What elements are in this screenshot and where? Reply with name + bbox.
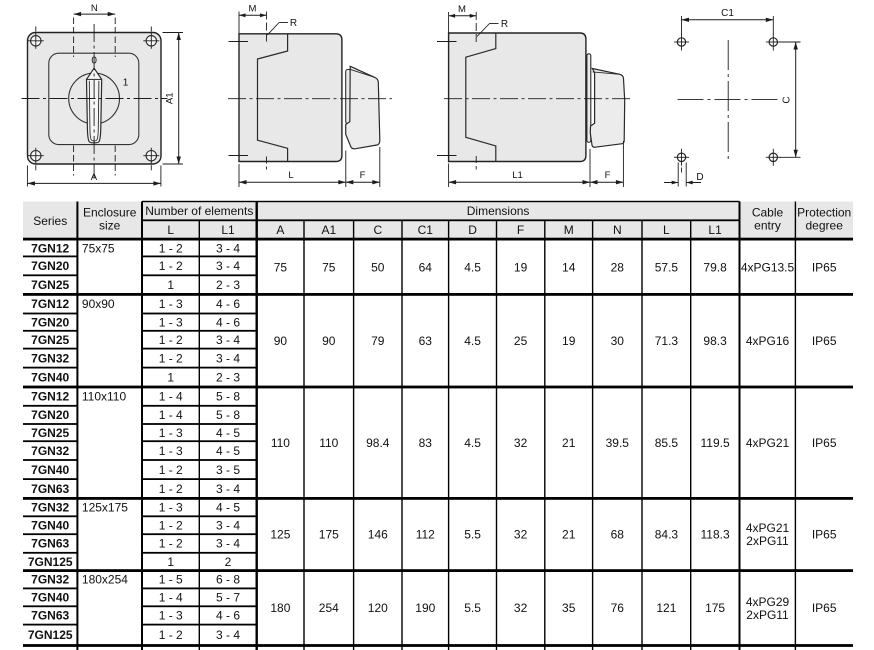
svg-text:90: 90: [274, 334, 288, 348]
svg-text:1 - 2: 1 - 2: [159, 537, 183, 551]
svg-text:83: 83: [419, 436, 433, 450]
svg-text:4xPG16: 4xPG16: [746, 334, 790, 348]
svg-text:98.3: 98.3: [703, 334, 727, 348]
svg-text:6 - 8: 6 - 8: [216, 573, 240, 587]
svg-text:7GN25: 7GN25: [31, 278, 69, 292]
svg-text:7GN63: 7GN63: [31, 482, 69, 496]
svg-text:57.5: 57.5: [655, 261, 679, 275]
svg-text:7GN32: 7GN32: [31, 573, 69, 587]
svg-text:175: 175: [319, 528, 339, 542]
svg-text:Number of elements: Number of elements: [145, 204, 253, 218]
svg-text:75: 75: [274, 261, 288, 275]
svg-text:4.5: 4.5: [464, 261, 481, 275]
svg-text:125: 125: [270, 528, 290, 542]
svg-text:71.3: 71.3: [655, 334, 679, 348]
svg-text:1 - 2: 1 - 2: [159, 242, 183, 256]
svg-text:3 - 4: 3 - 4: [216, 333, 240, 347]
svg-text:21: 21: [562, 436, 576, 450]
svg-text:M: M: [249, 4, 257, 15]
svg-text:90x90: 90x90: [82, 297, 115, 311]
svg-text:3 - 4: 3 - 4: [216, 537, 240, 551]
svg-text:5 - 7: 5 - 7: [216, 591, 240, 605]
svg-text:25: 25: [514, 334, 528, 348]
svg-text:110x110: 110x110: [82, 390, 127, 404]
svg-text:R: R: [290, 18, 297, 29]
svg-text:2: 2: [225, 555, 232, 569]
svg-text:3 - 4: 3 - 4: [216, 351, 240, 365]
svg-text:1 - 2: 1 - 2: [159, 333, 183, 347]
svg-text:4xPG21: 4xPG21: [746, 521, 790, 535]
svg-text:75x75: 75x75: [82, 242, 115, 256]
svg-text:1 - 3: 1 - 3: [159, 501, 183, 515]
svg-text:39.5: 39.5: [606, 436, 630, 450]
svg-text:110: 110: [319, 436, 338, 450]
svg-text:4 - 6: 4 - 6: [216, 609, 240, 623]
svg-text:50: 50: [371, 261, 385, 275]
svg-text:4xPG13.5: 4xPG13.5: [741, 261, 795, 275]
svg-text:R: R: [501, 19, 508, 30]
svg-text:IP65: IP65: [812, 334, 837, 348]
svg-text:D: D: [468, 223, 477, 237]
svg-text:D: D: [696, 172, 703, 183]
svg-text:32: 32: [514, 436, 528, 450]
svg-text:IP65: IP65: [812, 601, 837, 615]
svg-text:4 - 5: 4 - 5: [216, 501, 240, 515]
svg-text:1: 1: [123, 78, 129, 89]
svg-text:121: 121: [656, 601, 676, 615]
svg-text:4xPG29: 4xPG29: [746, 595, 790, 609]
svg-text:254: 254: [319, 601, 339, 615]
svg-text:3 - 4: 3 - 4: [216, 519, 240, 533]
svg-text:118.3: 118.3: [701, 528, 730, 542]
svg-text:1 - 2: 1 - 2: [159, 482, 183, 496]
svg-text:7GN63: 7GN63: [31, 609, 69, 623]
svg-text:180: 180: [270, 601, 290, 615]
svg-text:C1: C1: [721, 8, 734, 19]
svg-text:2 - 3: 2 - 3: [216, 278, 240, 292]
svg-text:IP65: IP65: [812, 436, 837, 450]
svg-text:1 - 5: 1 - 5: [159, 573, 183, 587]
svg-text:19: 19: [514, 261, 528, 275]
svg-text:Protection: Protection: [797, 206, 851, 220]
svg-text:14: 14: [562, 261, 576, 275]
svg-text:4.5: 4.5: [464, 436, 481, 450]
svg-text:85.5: 85.5: [655, 436, 679, 450]
svg-text:120: 120: [368, 601, 388, 615]
svg-text:5.5: 5.5: [464, 528, 481, 542]
svg-text:2xPG11: 2xPG11: [746, 608, 789, 622]
svg-text:7GN20: 7GN20: [31, 259, 69, 273]
svg-text:125x175: 125x175: [82, 501, 128, 515]
svg-text:7GN25: 7GN25: [31, 333, 69, 347]
svg-text:IP65: IP65: [812, 528, 837, 542]
svg-text:90: 90: [322, 334, 336, 348]
svg-text:3 - 4: 3 - 4: [216, 259, 240, 273]
svg-text:1 - 4: 1 - 4: [159, 390, 183, 404]
svg-text:C: C: [782, 96, 793, 103]
svg-text:3 - 4: 3 - 4: [216, 628, 240, 642]
svg-text:7GN32: 7GN32: [31, 444, 69, 458]
svg-text:19: 19: [562, 334, 576, 348]
svg-text:7GN40: 7GN40: [31, 519, 69, 533]
svg-text:3 - 5: 3 - 5: [216, 463, 240, 477]
svg-text:5 - 8: 5 - 8: [216, 408, 240, 422]
svg-text:1 - 3: 1 - 3: [159, 609, 183, 623]
svg-text:1 - 2: 1 - 2: [159, 628, 183, 642]
svg-text:A: A: [276, 223, 284, 237]
svg-text:A1: A1: [164, 92, 175, 104]
svg-text:4.5: 4.5: [464, 334, 481, 348]
svg-text:M: M: [564, 223, 574, 237]
svg-text:7GN12: 7GN12: [31, 390, 69, 404]
svg-text:4 - 5: 4 - 5: [216, 444, 240, 458]
svg-text:84.3: 84.3: [655, 528, 679, 542]
svg-text:4 - 6: 4 - 6: [216, 297, 240, 311]
svg-text:7GN40: 7GN40: [31, 591, 69, 605]
svg-text:7GN40: 7GN40: [31, 371, 69, 385]
svg-text:4 - 6: 4 - 6: [216, 315, 240, 329]
svg-text:119.5: 119.5: [701, 436, 730, 450]
svg-text:68: 68: [611, 528, 625, 542]
svg-text:C: C: [373, 223, 382, 237]
svg-text:5.5: 5.5: [464, 601, 481, 615]
svg-text:7GN25: 7GN25: [31, 426, 69, 440]
svg-text:21: 21: [562, 528, 576, 542]
svg-text:1 - 3: 1 - 3: [159, 426, 183, 440]
svg-text:32: 32: [514, 601, 528, 615]
svg-text:35: 35: [562, 601, 576, 615]
svg-text:Enclosure: Enclosure: [83, 206, 137, 220]
svg-text:190: 190: [415, 601, 435, 615]
svg-text:C1: C1: [418, 223, 434, 237]
svg-text:112: 112: [416, 528, 435, 542]
svg-text:180x254: 180x254: [82, 573, 128, 587]
svg-text:7GN32: 7GN32: [31, 501, 69, 515]
svg-text:28: 28: [611, 261, 625, 275]
svg-text:1: 1: [167, 371, 174, 385]
svg-text:L: L: [663, 223, 670, 237]
svg-text:L1: L1: [512, 170, 523, 181]
svg-text:N: N: [613, 223, 622, 237]
svg-text:L: L: [167, 223, 174, 237]
svg-text:1 - 2: 1 - 2: [159, 259, 183, 273]
svg-text:175: 175: [705, 601, 725, 615]
svg-text:110: 110: [271, 436, 290, 450]
svg-text:79: 79: [371, 334, 385, 348]
svg-text:F: F: [360, 170, 366, 181]
svg-text:63: 63: [419, 334, 433, 348]
svg-text:M: M: [458, 4, 466, 15]
svg-text:30: 30: [611, 334, 625, 348]
svg-text:size: size: [99, 219, 121, 233]
svg-text:7GN32: 7GN32: [31, 351, 69, 365]
svg-text:IP65: IP65: [812, 261, 837, 275]
svg-text:7GN12: 7GN12: [31, 297, 69, 311]
svg-text:2 - 3: 2 - 3: [216, 371, 240, 385]
svg-text:7GN125: 7GN125: [28, 555, 73, 569]
svg-text:146: 146: [368, 528, 388, 542]
svg-text:1 - 4: 1 - 4: [159, 591, 183, 605]
svg-text:1 - 2: 1 - 2: [159, 519, 183, 533]
svg-text:1: 1: [167, 278, 174, 292]
svg-text:F: F: [517, 223, 524, 237]
svg-text:76: 76: [611, 601, 625, 615]
svg-text:7GN125: 7GN125: [28, 628, 73, 642]
svg-text:L: L: [288, 170, 293, 181]
svg-text:1 - 2: 1 - 2: [159, 463, 183, 477]
svg-text:98.4: 98.4: [366, 436, 390, 450]
svg-text:A1: A1: [321, 223, 336, 237]
svg-text:1 - 2: 1 - 2: [159, 351, 183, 365]
svg-text:1 - 4: 1 - 4: [159, 408, 183, 422]
svg-text:N: N: [91, 3, 98, 14]
svg-text:L1: L1: [221, 223, 235, 237]
svg-text:3 - 4: 3 - 4: [216, 482, 240, 496]
svg-text:4 - 5: 4 - 5: [216, 426, 240, 440]
svg-text:64: 64: [419, 261, 433, 275]
svg-text:entry: entry: [754, 219, 781, 233]
svg-text:5 - 8: 5 - 8: [216, 390, 240, 404]
svg-text:1 - 3: 1 - 3: [159, 297, 183, 311]
svg-text:7GN20: 7GN20: [31, 315, 69, 329]
svg-text:7GN12: 7GN12: [31, 242, 69, 256]
svg-text:75: 75: [322, 261, 336, 275]
svg-text:3 - 4: 3 - 4: [216, 242, 240, 256]
svg-text:4xPG21: 4xPG21: [746, 436, 790, 450]
svg-text:7GN20: 7GN20: [31, 408, 69, 422]
svg-text:L1: L1: [708, 223, 722, 237]
svg-text:Series: Series: [33, 214, 67, 228]
svg-text:2xPG11: 2xPG11: [746, 534, 789, 548]
svg-text:32: 32: [514, 528, 528, 542]
svg-text:A: A: [91, 172, 98, 183]
svg-text:degree: degree: [806, 219, 844, 233]
svg-text:F: F: [605, 170, 611, 181]
svg-text:1 - 3: 1 - 3: [159, 444, 183, 458]
svg-text:1 - 3: 1 - 3: [159, 315, 183, 329]
svg-text:Dimensions: Dimensions: [467, 204, 530, 218]
svg-text:1: 1: [167, 555, 174, 569]
svg-text:7GN40: 7GN40: [31, 463, 69, 477]
svg-text:79.8: 79.8: [703, 261, 727, 275]
svg-text:7GN63: 7GN63: [31, 537, 69, 551]
svg-text:Cable: Cable: [752, 206, 784, 220]
